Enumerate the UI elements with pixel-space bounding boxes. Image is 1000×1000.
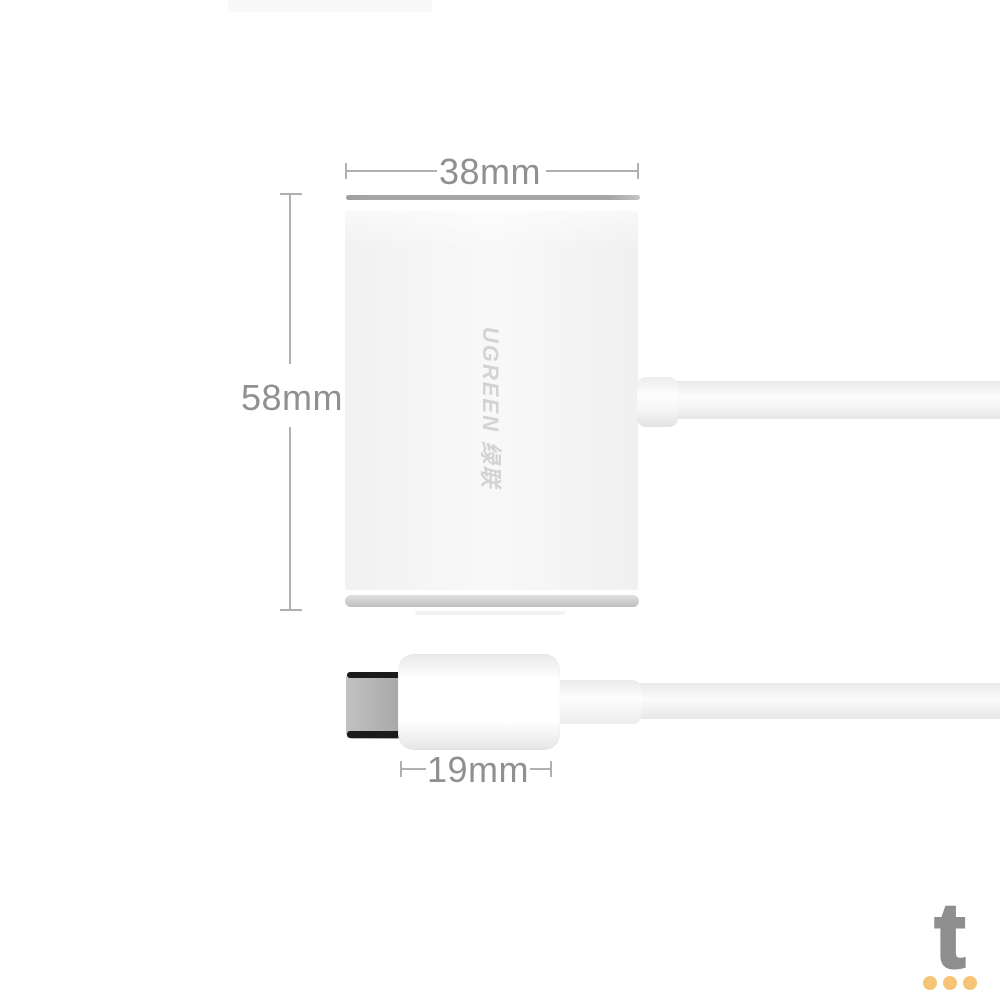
height-dimension-cap-bottom	[280, 609, 302, 611]
plug-dimension-tick-right	[550, 761, 552, 777]
adapter-top-edge	[346, 195, 640, 200]
height-dimension-line-top	[289, 194, 291, 364]
adapter-cable	[674, 381, 1000, 419]
watermark-dot	[943, 976, 957, 990]
watermark-letter: t	[912, 890, 988, 982]
usbc-plug-neck	[556, 680, 642, 724]
plug-cable	[640, 683, 1000, 719]
watermark-dots	[923, 976, 977, 990]
photo-artifact	[228, 0, 432, 12]
usbc-tip-edge-bottom	[347, 731, 403, 738]
height-dimension-label: 58mm	[222, 378, 362, 418]
adapter-shadow	[415, 611, 565, 615]
cable-strain-relief	[637, 377, 678, 427]
watermark-dot	[923, 976, 937, 990]
plug-dimension-label: 19mm	[408, 750, 548, 790]
width-dimension-tick-right	[637, 163, 639, 179]
width-dimension-line-right	[546, 170, 638, 172]
usbc-tip-edge-top	[347, 672, 403, 678]
height-dimension-line-bottom	[289, 427, 291, 611]
product-dimension-diagram: 38mm 58mm UGREEN 绿联 19mm t	[0, 0, 1000, 1000]
width-dimension-label: 38mm	[420, 152, 560, 192]
plug-dimension-line-right	[530, 768, 551, 770]
height-dimension-cap-top	[280, 193, 302, 195]
adapter-bottom-edge	[345, 595, 639, 607]
watermark-dot	[963, 976, 977, 990]
brand-text: UGREEN 绿联	[476, 322, 504, 494]
usbc-plug-body	[398, 654, 560, 750]
